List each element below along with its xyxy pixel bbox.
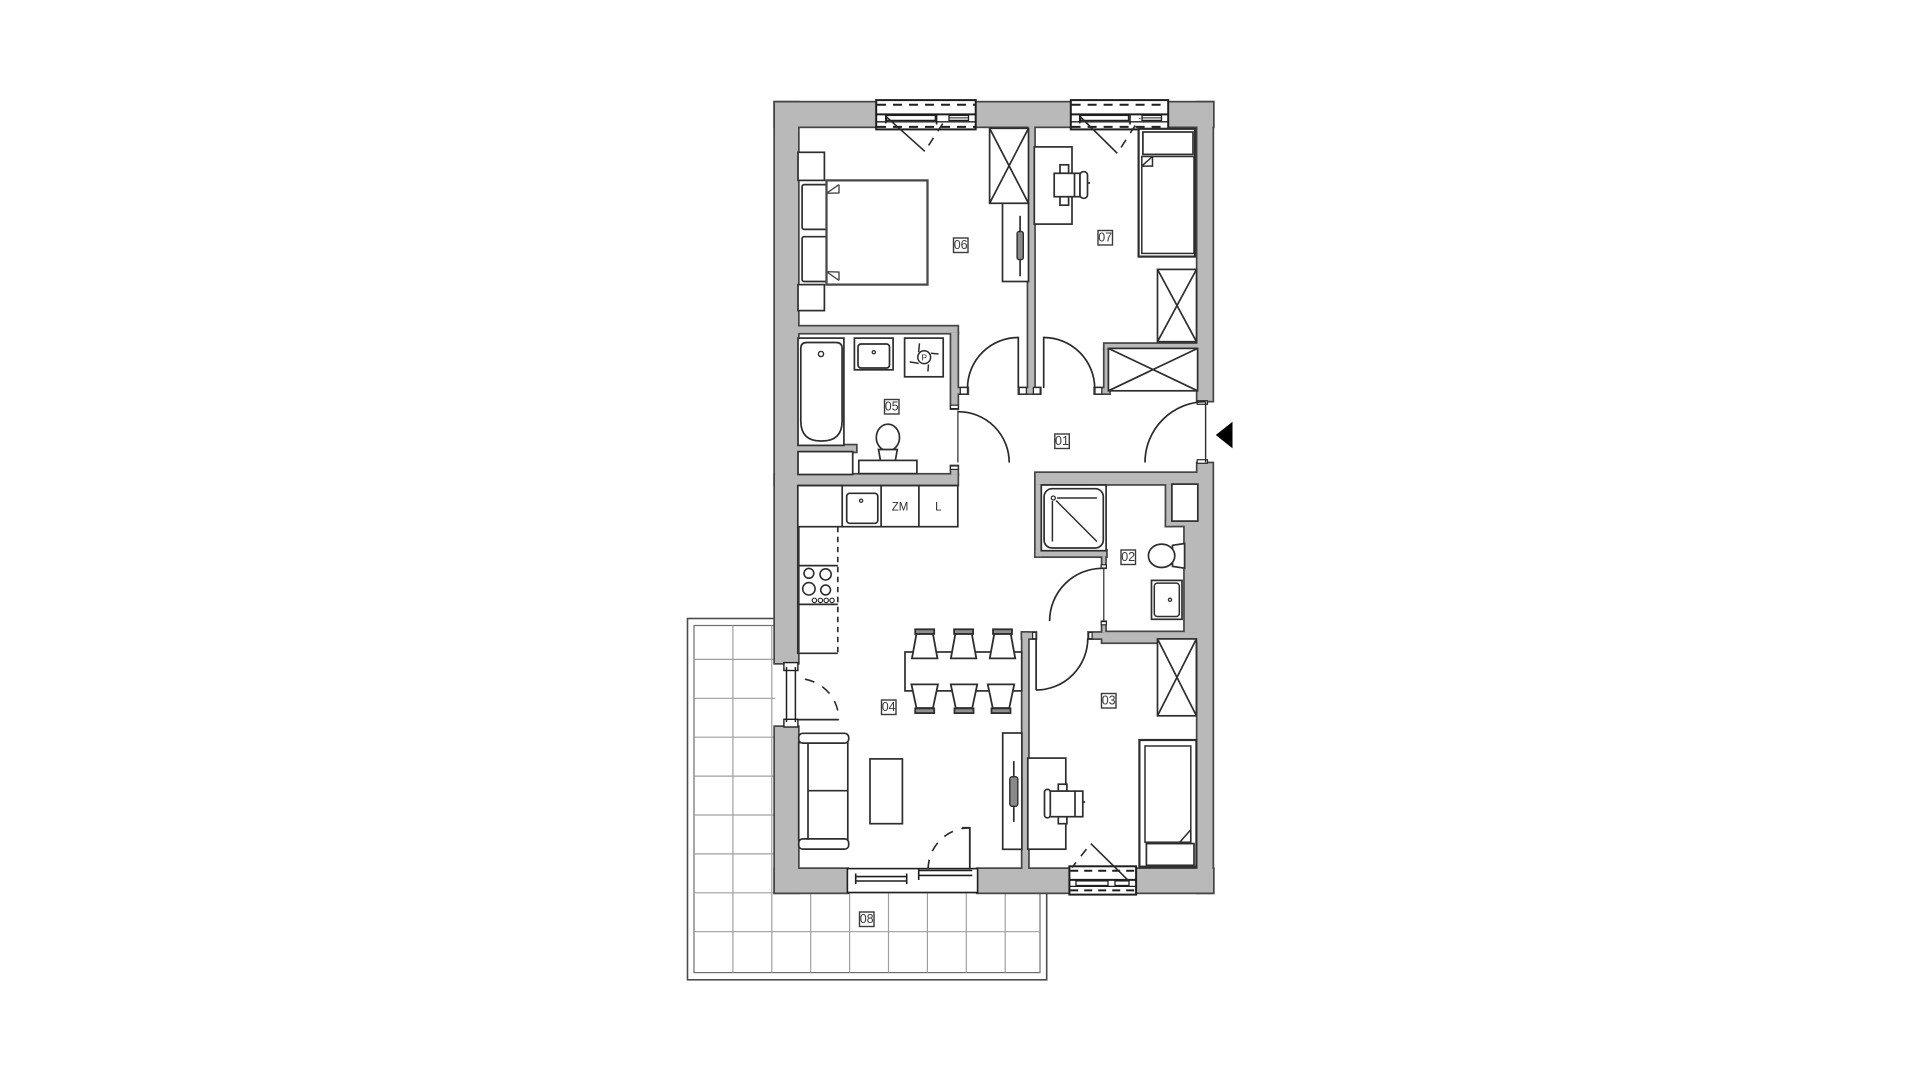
svg-text:03: 03: [1102, 694, 1116, 708]
svg-text:01: 01: [1055, 434, 1069, 448]
svg-text:05: 05: [885, 400, 899, 414]
svg-text:06: 06: [954, 238, 968, 252]
svg-text:08: 08: [860, 912, 874, 926]
svg-text:ZM: ZM: [892, 502, 909, 514]
svg-text:07: 07: [1098, 231, 1112, 245]
svg-text:P: P: [921, 352, 927, 362]
svg-text:02: 02: [1121, 550, 1135, 564]
svg-text:L: L: [935, 502, 942, 514]
svg-text:04: 04: [882, 700, 896, 714]
